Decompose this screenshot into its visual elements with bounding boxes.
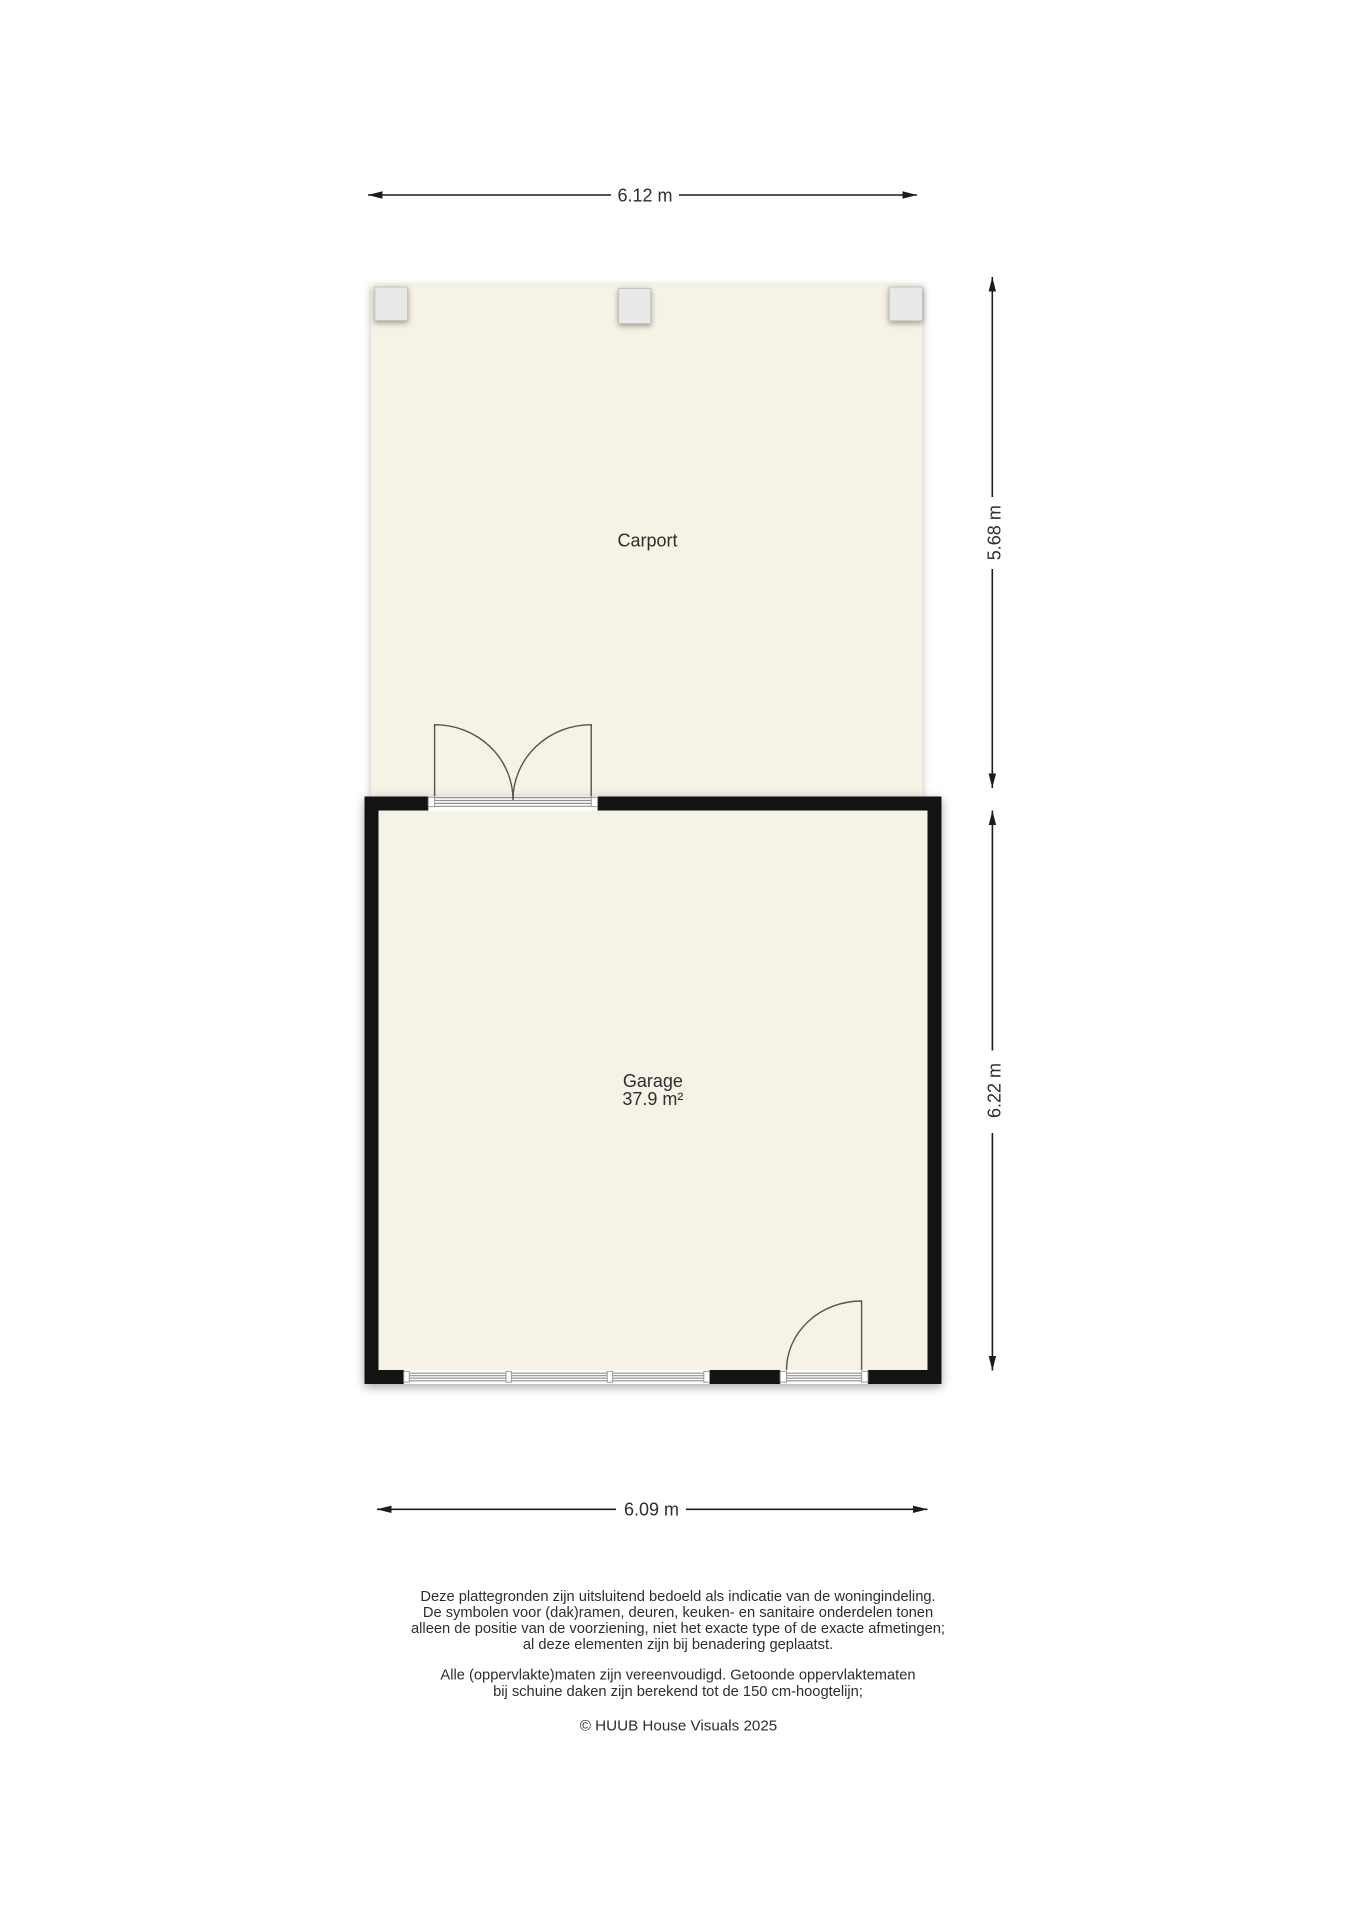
svg-text:Deze plattegronden zijn uitslu: Deze plattegronden zijn uitsluitend bedo… [420, 1589, 935, 1605]
svg-text:6.12 m: 6.12 m [617, 185, 672, 205]
svg-text:Alle (oppervlakte)maten zijn v: Alle (oppervlakte)maten zijn vereenvoudi… [440, 1667, 915, 1683]
svg-text:Carport: Carport [617, 531, 677, 551]
svg-text:De symbolen voor (dak)ramen, d: De symbolen voor (dak)ramen, deuren, keu… [423, 1605, 933, 1621]
svg-text:bij schuine daken zijn bereken: bij schuine daken zijn berekend tot de 1… [493, 1684, 863, 1700]
svg-text:al deze elementen zijn bij ben: al deze elementen zijn bij benadering ge… [523, 1637, 833, 1653]
svg-text:6.22 m: 6.22 m [985, 1063, 1005, 1118]
svg-text:alleen de positie van de voorz: alleen de positie van de voorziening, ni… [411, 1621, 945, 1637]
svg-text:6.09 m: 6.09 m [624, 1500, 679, 1520]
svg-text:Garage: Garage [623, 1071, 683, 1091]
svg-text:5.68 m: 5.68 m [985, 505, 1005, 560]
svg-text:© HUUB House Visuals 2025: © HUUB House Visuals 2025 [580, 1718, 777, 1735]
svg-text:37.9 m²: 37.9 m² [622, 1089, 683, 1109]
